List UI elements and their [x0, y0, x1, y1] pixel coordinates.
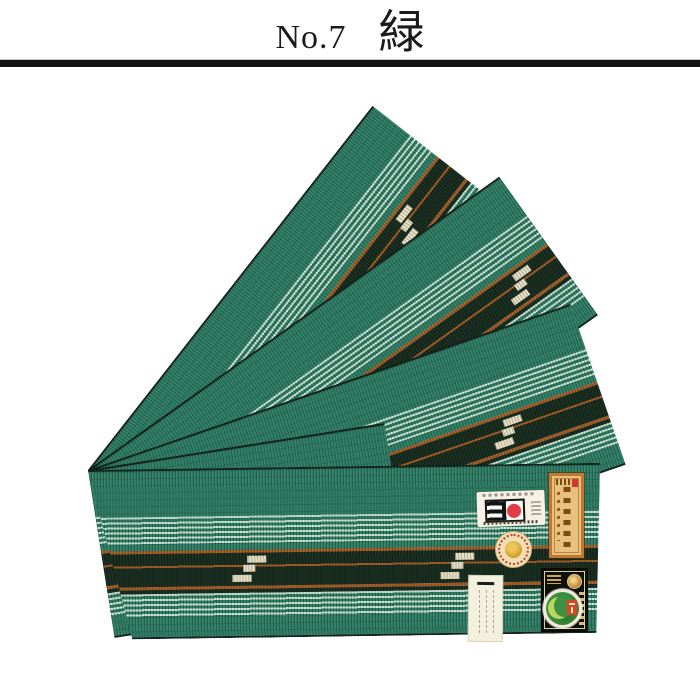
- color-name: 緑: [379, 9, 425, 55]
- page-title: No.7 緑: [275, 9, 424, 59]
- logo-bars-icon: [487, 501, 506, 521]
- tag-heading-bar: [477, 582, 494, 585]
- green-round-sticker: [543, 589, 582, 628]
- certification-label: [541, 568, 588, 632]
- paper-price-tag: [468, 575, 504, 642]
- title-divider-bar: [0, 59, 700, 67]
- fine-print-line: [482, 492, 536, 497]
- red-sun-icon: [505, 501, 523, 521]
- page-header: No.7 緑: [0, 0, 700, 59]
- kasuri-motif: [232, 556, 266, 582]
- orange-mark-icon: [567, 600, 577, 615]
- fine-print-line: [547, 575, 561, 584]
- red-seal-icon: [572, 479, 578, 487]
- calligraphy-gold-tag: [549, 473, 584, 558]
- fine-print-line: [483, 520, 539, 525]
- round-seal-sticker: [495, 531, 532, 568]
- maker-card-label: [476, 490, 545, 527]
- rising-sun-logo-icon: [485, 499, 526, 523]
- fine-print-line: [556, 479, 570, 485]
- obi-fan-photo: [0, 0, 700, 700]
- vertical-calligraphy-text: [563, 487, 570, 548]
- product-number: No.7: [275, 21, 346, 55]
- vertical-calligraphy-text: [557, 492, 560, 541]
- fine-print-column: [531, 501, 542, 517]
- vertical-handwritten-text: [474, 590, 497, 635]
- gold-coin-seal-icon: [567, 574, 582, 589]
